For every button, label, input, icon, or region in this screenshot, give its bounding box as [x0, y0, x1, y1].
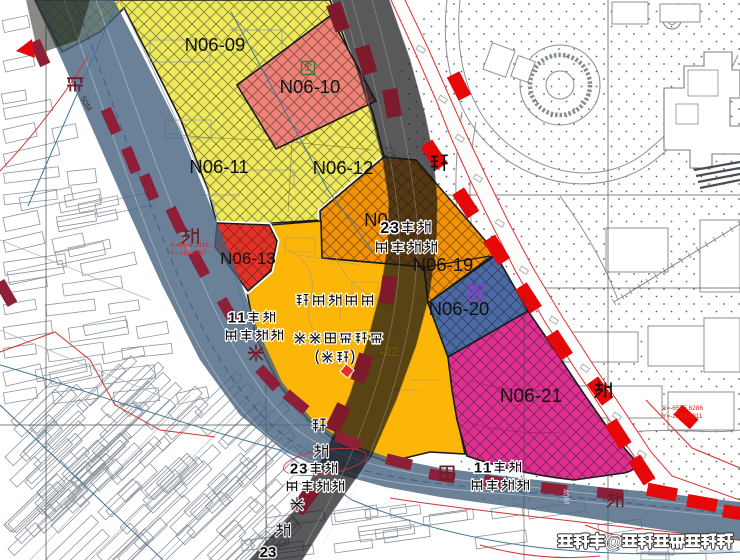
svg-text:N06-12: N06-12 [313, 157, 374, 178]
svg-text:N06-21: N06-21 [500, 386, 562, 407]
svg-text:1: 1 [474, 459, 482, 476]
svg-text:23: 23 [260, 544, 277, 560]
svg-text:X=6464.1416: X=6464.1416 [170, 242, 209, 249]
svg-text:3: 3 [390, 220, 399, 237]
svg-text:3: 3 [299, 460, 307, 477]
svg-text:X=-6575.6286: X=-6575.6286 [662, 405, 703, 412]
svg-text:40M: 40M [561, 488, 571, 505]
svg-text:Y=-109.0087: Y=-109.0087 [170, 250, 208, 257]
svg-text:N06-13: N06-13 [220, 249, 276, 268]
svg-text:2: 2 [380, 220, 389, 237]
svg-text:N06-09: N06-09 [185, 34, 246, 55]
svg-text:2: 2 [290, 460, 298, 477]
svg-text:-22: -22 [380, 344, 399, 359]
svg-text:N06-19: N06-19 [413, 254, 474, 275]
svg-text:Y=-2182.0911: Y=-2182.0911 [662, 413, 703, 420]
svg-text:1: 1 [237, 309, 245, 326]
svg-text:1: 1 [483, 459, 491, 476]
svg-text:N06-20: N06-20 [429, 298, 490, 319]
svg-text:1: 1 [228, 309, 236, 326]
svg-text:N06-10: N06-10 [280, 76, 341, 97]
svg-text:N06-11: N06-11 [189, 156, 248, 177]
svg-text:@: @ [604, 532, 623, 553]
